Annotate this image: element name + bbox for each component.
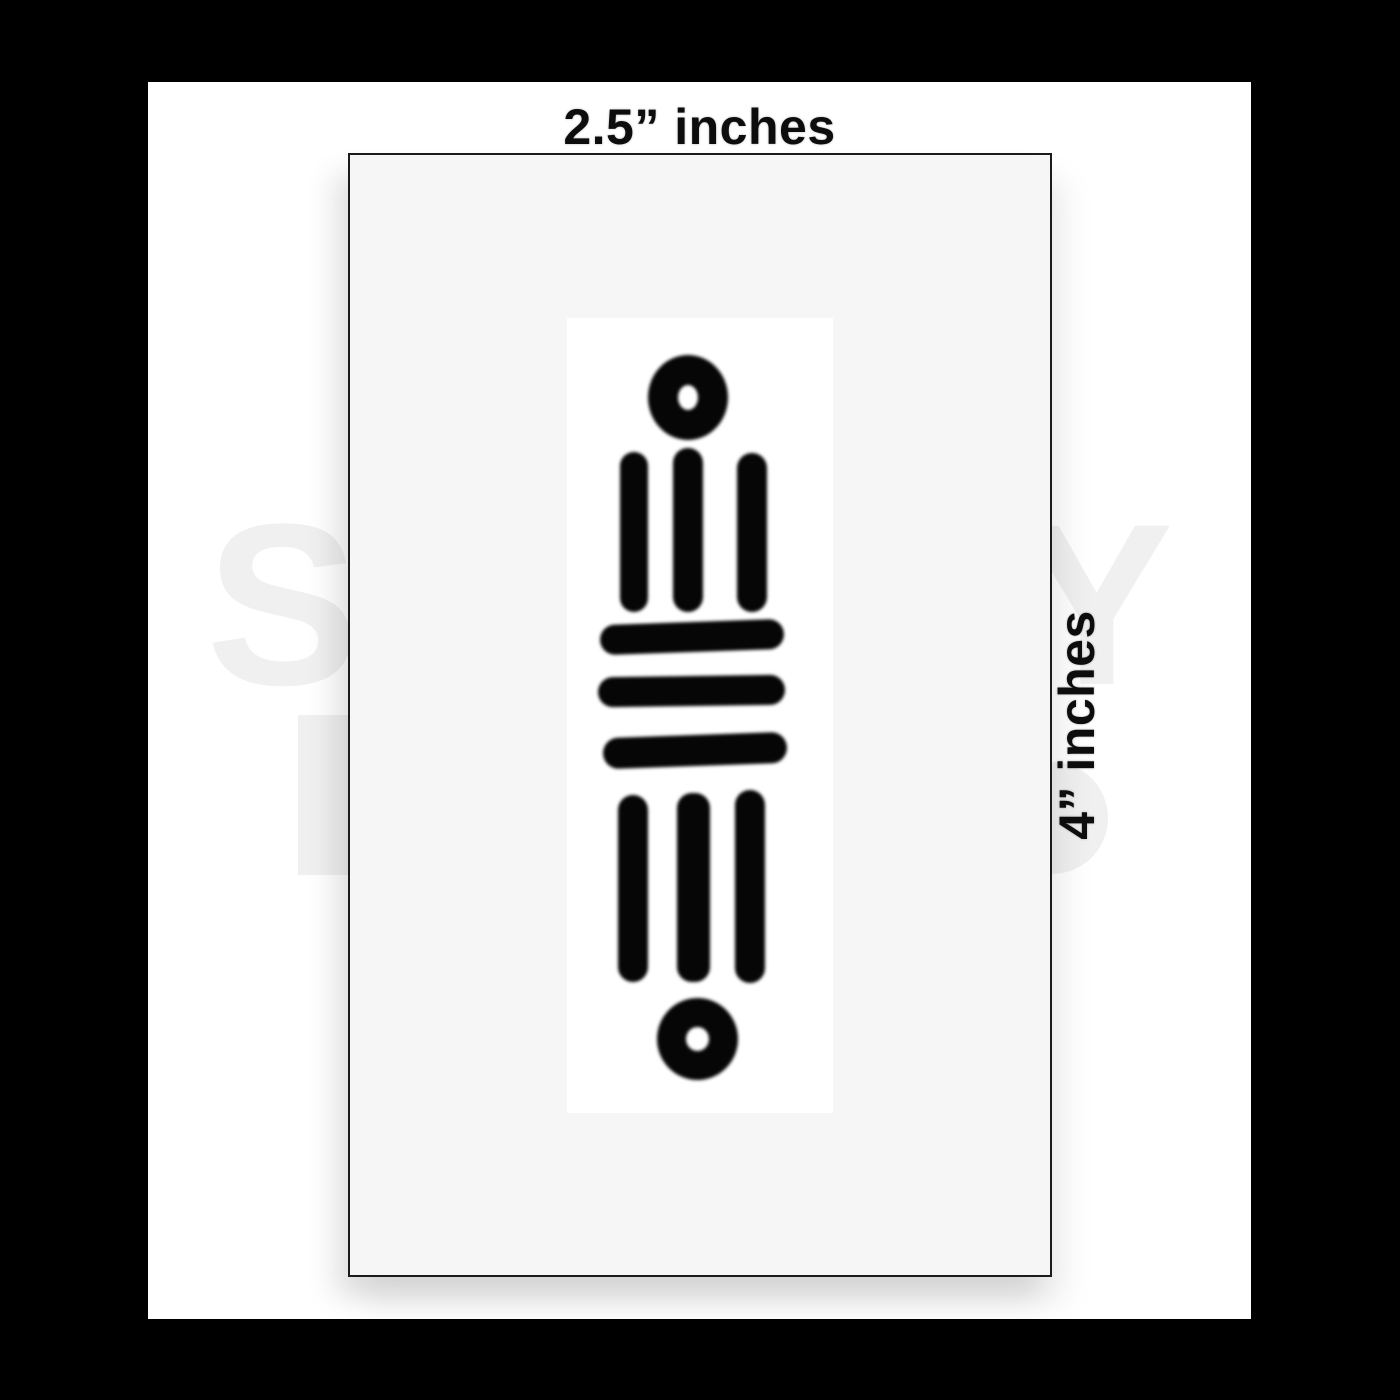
middle-horizontal-bar-3 xyxy=(603,732,788,769)
middle-horizontal-bar-2 xyxy=(598,675,785,708)
top-ring-glyph xyxy=(648,355,728,440)
upper-vertical-bar-2 xyxy=(673,448,703,612)
image-background: S Y 2.5” inches 4” inches xyxy=(148,82,1251,1319)
upper-vertical-bar-1 xyxy=(620,452,648,612)
tattoo-sheet xyxy=(348,153,1052,1277)
tattoo-backing-paper xyxy=(567,318,833,1113)
product-image-canvas: S Y 2.5” inches 4” inches xyxy=(0,0,1400,1400)
lower-vertical-bar-3 xyxy=(735,790,765,983)
bottom-ring-glyph xyxy=(657,998,738,1080)
height-dimension-label: 4” inches xyxy=(1048,610,1106,840)
lower-vertical-bar-1 xyxy=(618,795,648,982)
lower-vertical-bar-2 xyxy=(677,793,710,982)
watermark-letter-left: S xyxy=(206,490,359,720)
upper-vertical-bar-3 xyxy=(737,453,767,612)
middle-horizontal-bar-1 xyxy=(600,619,785,655)
width-dimension-label: 2.5” inches xyxy=(148,98,1251,156)
